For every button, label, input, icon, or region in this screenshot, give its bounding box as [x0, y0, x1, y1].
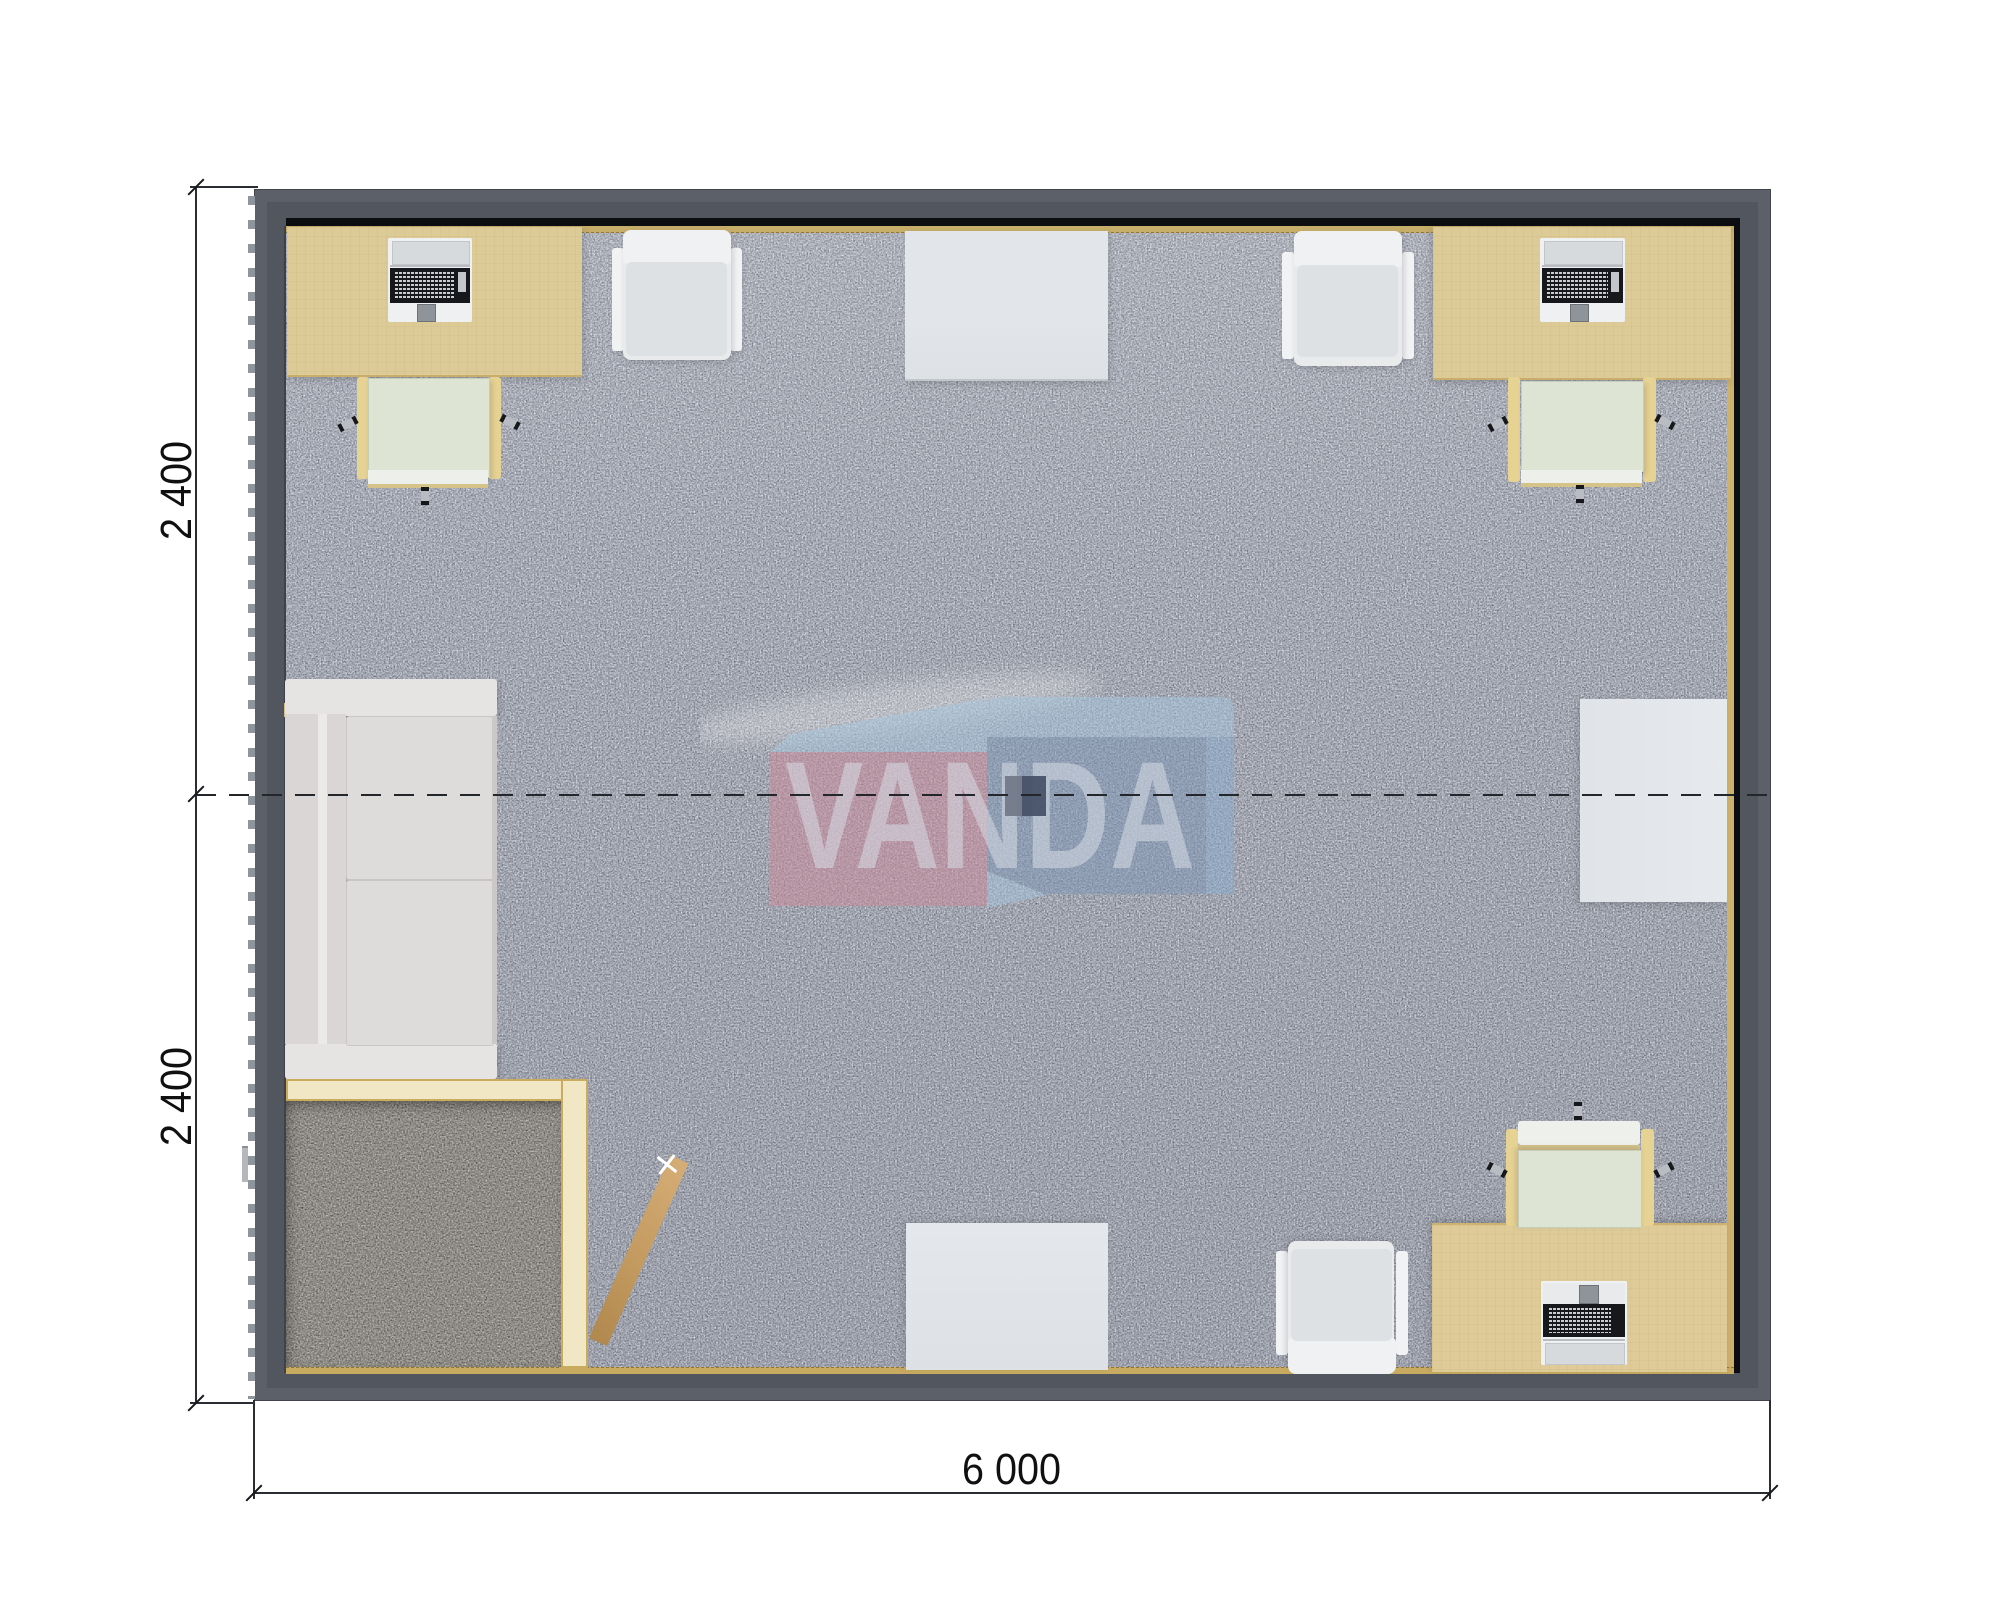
svg-text:2 400: 2 400	[152, 1047, 201, 1146]
svg-text:2 400: 2 400	[152, 441, 201, 540]
svg-text:6 000: 6 000	[962, 1445, 1061, 1494]
